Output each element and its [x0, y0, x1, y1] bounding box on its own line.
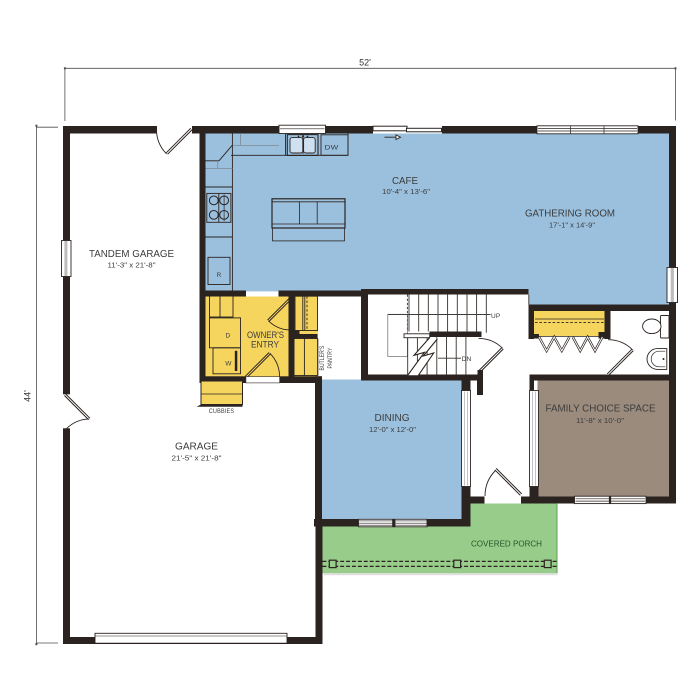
svg-text:12'-0" x 12'-0": 12'-0" x 12'-0" [369, 425, 416, 434]
svg-text:DW: DW [325, 145, 339, 152]
svg-text:D: D [226, 333, 231, 340]
svg-text:DN: DN [462, 356, 472, 363]
svg-text:BUTLER'S: BUTLER'S [319, 346, 326, 371]
svg-text:GARAGE: GARAGE [175, 442, 218, 453]
svg-text:W: W [225, 361, 232, 368]
svg-text:DINING: DINING [375, 413, 410, 424]
svg-text:11'-3" x 21'-8": 11'-3" x 21'-8" [108, 261, 156, 270]
svg-text:21'-5" x 21'-8": 21'-5" x 21'-8" [172, 454, 222, 463]
svg-text:44': 44' [23, 390, 33, 402]
svg-text:UP: UP [491, 313, 501, 320]
svg-text:TANDEM GARAGE: TANDEM GARAGE [89, 249, 174, 260]
svg-text:GATHERING ROOM: GATHERING ROOM [525, 209, 615, 220]
svg-text:COVERED PORCH: COVERED PORCH [471, 540, 542, 549]
svg-text:FAMILY CHOICE SPACE: FAMILY CHOICE SPACE [546, 404, 656, 415]
svg-text:11'-8" x 10'-0": 11'-8" x 10'-0" [576, 416, 624, 425]
svg-text:R: R [217, 272, 222, 279]
svg-text:OWNER'S: OWNER'S [247, 330, 284, 340]
svg-text:ENTRY: ENTRY [251, 340, 279, 350]
svg-text:PANTRY: PANTRY [327, 348, 334, 369]
svg-text:CAFE: CAFE [392, 176, 418, 187]
svg-text:17'-1" x 14'-9": 17'-1" x 14'-9" [549, 220, 595, 229]
svg-text:CUBBIES: CUBBIES [209, 408, 235, 415]
svg-text:52': 52' [359, 58, 371, 68]
svg-text:10'-4" x 13'-6": 10'-4" x 13'-6" [382, 187, 430, 196]
